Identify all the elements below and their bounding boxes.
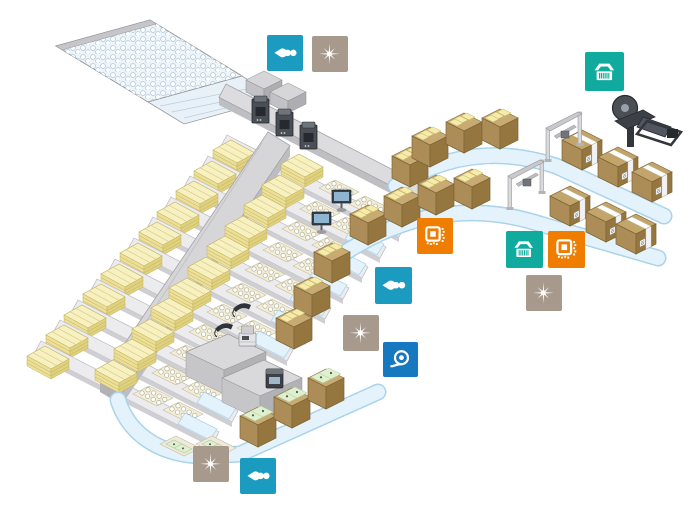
sensor-beam-icon	[273, 41, 297, 65]
labeling-robot	[613, 96, 682, 148]
sensor-beam-icon	[246, 464, 270, 488]
open-carton	[454, 169, 490, 209]
label-roller-icon	[389, 348, 412, 371]
inline-controller	[276, 109, 293, 136]
laser-marker-badge-1[interactable]	[312, 36, 348, 72]
laser-marker-icon	[349, 321, 373, 345]
sensor-badge-3[interactable]	[240, 458, 276, 494]
inline-controller	[300, 122, 317, 149]
barcode-reader-badge-2[interactable]	[506, 231, 543, 268]
laser-marker-icon	[532, 281, 556, 305]
open-carton	[350, 205, 386, 245]
laser-marker-icon	[318, 42, 342, 66]
label-printer-machine	[239, 326, 256, 346]
laser-marker-badge-3[interactable]	[343, 315, 379, 351]
code-reader-badge-1[interactable]	[417, 218, 453, 254]
inline-controller	[252, 96, 269, 123]
code-reader-icon	[423, 224, 447, 248]
barcode-reader-icon	[592, 59, 618, 85]
laser-marker-icon	[199, 452, 223, 476]
laser-marker-badge-4[interactable]	[193, 446, 229, 482]
code-reader-icon	[554, 237, 578, 261]
open-carton	[276, 309, 312, 349]
open-carton	[412, 127, 448, 167]
sensor-badge-1[interactable]	[267, 35, 303, 71]
label-printer-badge-1[interactable]	[383, 342, 418, 377]
code-reader-badge-2[interactable]	[548, 231, 585, 268]
sensor-beam-icon	[381, 273, 405, 297]
open-carton	[446, 113, 482, 153]
open-carton	[418, 175, 454, 215]
barcode-reader-icon	[512, 237, 536, 261]
open-carton-green	[308, 368, 344, 409]
barcode-reader-badge-1[interactable]	[585, 52, 624, 91]
line-controller	[266, 369, 283, 388]
open-carton	[384, 187, 420, 227]
open-carton	[482, 109, 518, 149]
laser-marker-badge-2[interactable]	[526, 275, 562, 311]
sensor-badge-2[interactable]	[375, 267, 412, 304]
illustration-stage	[0, 0, 699, 523]
open-carton	[314, 243, 350, 283]
